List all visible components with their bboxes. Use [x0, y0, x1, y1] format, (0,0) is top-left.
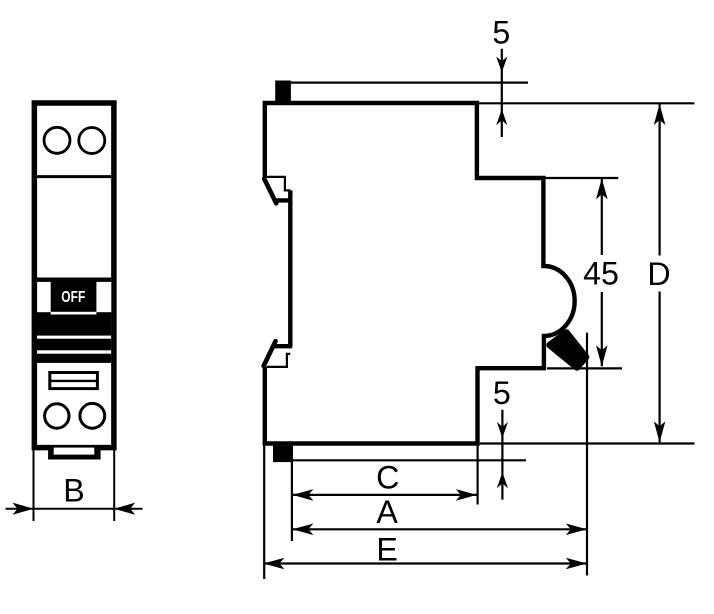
svg-text:45: 45: [583, 255, 619, 291]
svg-text:OFF: OFF: [61, 289, 85, 306]
svg-text:A: A: [376, 494, 398, 530]
svg-text:C: C: [376, 460, 399, 496]
svg-text:5: 5: [492, 15, 510, 51]
svg-text:E: E: [376, 532, 397, 568]
svg-text:5: 5: [493, 375, 511, 411]
svg-text:D: D: [647, 256, 670, 292]
svg-text:B: B: [63, 473, 84, 509]
